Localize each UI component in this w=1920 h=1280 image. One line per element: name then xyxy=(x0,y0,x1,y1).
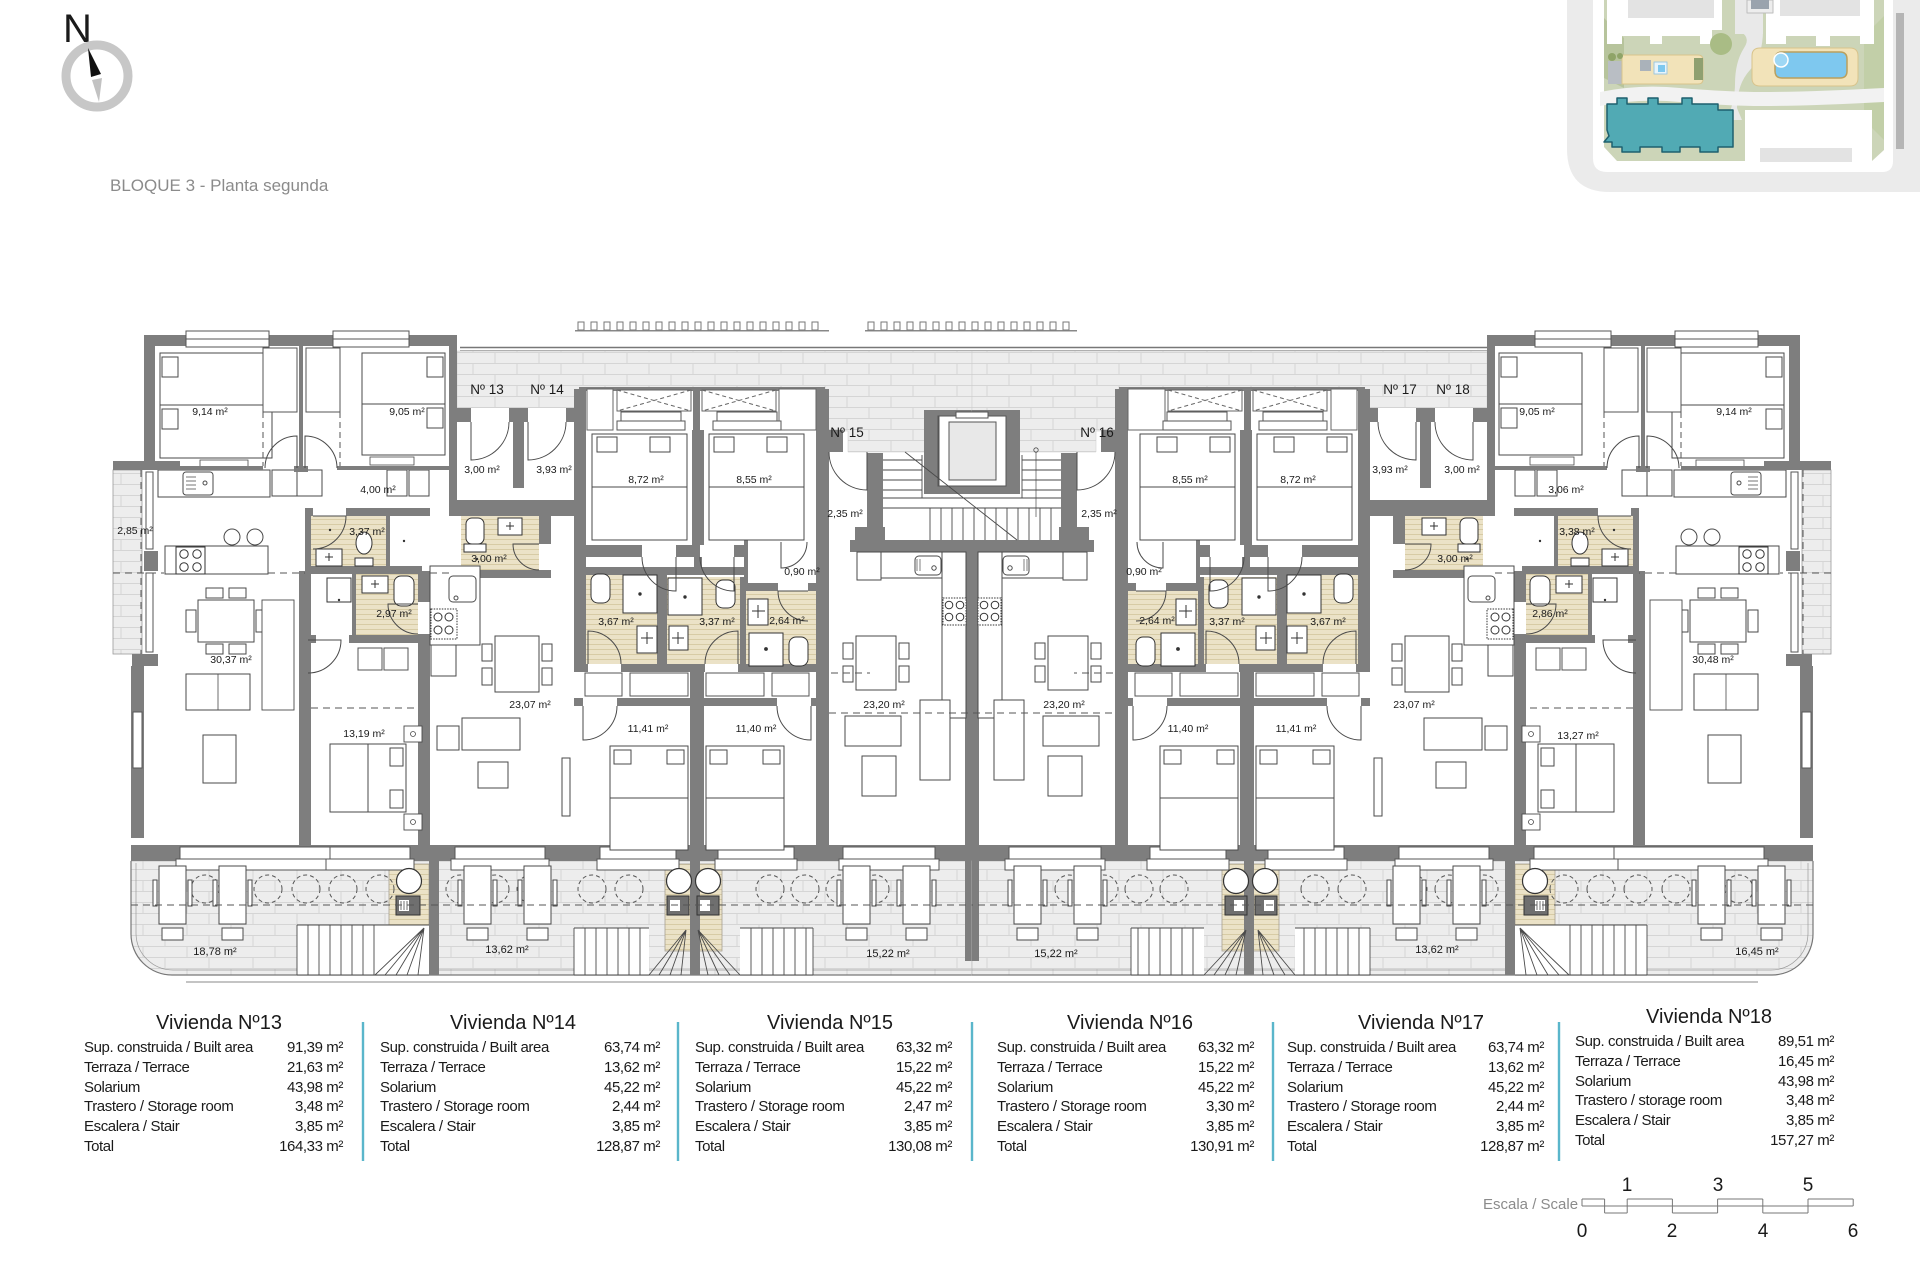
svg-text:Escalera / Stair: Escalera / Stair xyxy=(1287,1118,1383,1135)
svg-text:Nº 18: Nº 18 xyxy=(1436,382,1469,397)
svg-text:6: 6 xyxy=(1848,1221,1859,1242)
svg-text:Solarium: Solarium xyxy=(380,1079,436,1096)
svg-text:23,20 m²: 23,20 m² xyxy=(863,699,905,711)
svg-text:Escalera / Stair: Escalera / Stair xyxy=(997,1118,1093,1135)
svg-text:3,38 m²: 3,38 m² xyxy=(1559,526,1595,538)
svg-text:Solarium: Solarium xyxy=(695,1079,751,1096)
svg-text:45,22 m²: 45,22 m² xyxy=(896,1079,952,1096)
svg-text:Vivienda Nº16: Vivienda Nº16 xyxy=(1067,1012,1193,1034)
svg-text:63,32 m²: 63,32 m² xyxy=(1198,1039,1254,1056)
svg-text:8,72 m²: 8,72 m² xyxy=(628,474,664,486)
svg-text:Total: Total xyxy=(380,1138,410,1155)
svg-text:3,37 m²: 3,37 m² xyxy=(349,526,385,538)
svg-text:3,85 m²: 3,85 m² xyxy=(295,1118,343,1135)
svg-text:128,87 m²: 128,87 m² xyxy=(596,1138,660,1155)
svg-text:3,00 m²: 3,00 m² xyxy=(471,553,507,565)
svg-text:Escalera / Stair: Escalera / Stair xyxy=(380,1118,476,1135)
svg-text:2,85 m²: 2,85 m² xyxy=(117,525,153,537)
svg-text:Terraza / Terrace: Terraza / Terrace xyxy=(695,1059,801,1076)
svg-text:Sup. construida / Built area: Sup. construida / Built area xyxy=(84,1039,254,1056)
svg-text:Total: Total xyxy=(695,1138,725,1155)
svg-text:Total: Total xyxy=(1575,1132,1605,1149)
svg-text:Nº 15: Nº 15 xyxy=(830,425,863,440)
svg-text:45,22 m²: 45,22 m² xyxy=(1488,1079,1544,1096)
svg-text:15,22 m²: 15,22 m² xyxy=(896,1059,952,1076)
svg-text:13,62 m²: 13,62 m² xyxy=(604,1059,660,1076)
svg-text:Solarium: Solarium xyxy=(84,1079,140,1096)
svg-text:Terraza / Terrace: Terraza / Terrace xyxy=(84,1059,190,1076)
svg-text:11,41 m²: 11,41 m² xyxy=(1276,723,1317,735)
svg-text:0: 0 xyxy=(1577,1221,1588,1242)
svg-text:4: 4 xyxy=(1758,1221,1769,1242)
svg-text:Vivienda Nº13: Vivienda Nº13 xyxy=(156,1012,282,1034)
svg-text:Terraza / Terrace: Terraza / Terrace xyxy=(997,1059,1103,1076)
svg-text:9,05 m²: 9,05 m² xyxy=(389,406,425,418)
svg-text:3,48 m²: 3,48 m² xyxy=(1786,1092,1834,1109)
svg-text:4,00 m²: 4,00 m² xyxy=(360,484,396,496)
svg-text:8,72 m²: 8,72 m² xyxy=(1280,474,1316,486)
svg-text:Escalera / Stair: Escalera / Stair xyxy=(84,1118,180,1135)
svg-text:1: 1 xyxy=(1622,1175,1633,1196)
svg-text:11,40 m²: 11,40 m² xyxy=(1168,723,1209,735)
svg-text:Terraza / Terrace: Terraza / Terrace xyxy=(1287,1059,1393,1076)
svg-text:Escalera / Stair: Escalera / Stair xyxy=(1575,1112,1671,1129)
svg-text:Vivienda Nº15: Vivienda Nº15 xyxy=(767,1012,893,1034)
svg-text:13,62 m²: 13,62 m² xyxy=(485,944,529,956)
svg-text:2: 2 xyxy=(1667,1221,1678,1242)
svg-text:3,37 m²: 3,37 m² xyxy=(1209,616,1245,628)
svg-text:11,41 m²: 11,41 m² xyxy=(628,723,669,735)
svg-text:Terraza / Terrace: Terraza / Terrace xyxy=(1575,1053,1681,1070)
svg-text:30,37 m²: 30,37 m² xyxy=(210,654,252,666)
svg-text:3,85 m²: 3,85 m² xyxy=(1206,1118,1254,1135)
svg-text:3,85 m²: 3,85 m² xyxy=(904,1118,952,1135)
svg-text:Total: Total xyxy=(84,1138,114,1155)
svg-text:BLOQUE 3 - Planta segunda: BLOQUE 3 - Planta segunda xyxy=(110,176,329,195)
svg-text:16,45 m²: 16,45 m² xyxy=(1778,1053,1834,1070)
svg-text:2,35 m²: 2,35 m² xyxy=(827,508,863,520)
svg-text:Total: Total xyxy=(1287,1138,1317,1155)
svg-text:130,91 m²: 130,91 m² xyxy=(1190,1138,1254,1155)
svg-text:45,22 m²: 45,22 m² xyxy=(1198,1079,1254,1096)
svg-text:Trastero / Storage room: Trastero / Storage room xyxy=(380,1098,529,1115)
svg-text:Sup. construida / Built area: Sup. construida / Built area xyxy=(695,1039,865,1056)
svg-text:3,00 m²: 3,00 m² xyxy=(1444,464,1480,476)
svg-text:3,67 m²: 3,67 m² xyxy=(598,616,634,628)
svg-text:2,64 m²: 2,64 m² xyxy=(769,615,805,627)
svg-text:130,08 m²: 130,08 m² xyxy=(888,1138,952,1155)
svg-text:Trastero / Storage room: Trastero / Storage room xyxy=(1287,1098,1436,1115)
svg-text:2,64 m²: 2,64 m² xyxy=(1139,615,1175,627)
svg-text:2,44 m²: 2,44 m² xyxy=(1496,1098,1544,1115)
svg-text:2,47 m²: 2,47 m² xyxy=(904,1098,952,1115)
svg-text:15,22 m²: 15,22 m² xyxy=(1034,948,1078,960)
svg-text:63,74 m²: 63,74 m² xyxy=(604,1039,660,1056)
svg-text:3,30 m²: 3,30 m² xyxy=(1206,1098,1254,1115)
svg-text:Nº 16: Nº 16 xyxy=(1080,425,1113,440)
svg-text:Nº 17: Nº 17 xyxy=(1383,382,1416,397)
svg-text:23,07 m²: 23,07 m² xyxy=(1393,699,1435,711)
svg-text:3: 3 xyxy=(1713,1175,1724,1196)
svg-text:43,98 m²: 43,98 m² xyxy=(287,1079,343,1096)
svg-text:21,63 m²: 21,63 m² xyxy=(287,1059,343,1076)
svg-text:Sup. construida / Built area: Sup. construida / Built area xyxy=(997,1039,1167,1056)
svg-text:9,14 m²: 9,14 m² xyxy=(1716,406,1752,418)
svg-text:45,22 m²: 45,22 m² xyxy=(604,1079,660,1096)
svg-text:8,55 m²: 8,55 m² xyxy=(736,474,772,486)
svg-text:3,37 m²: 3,37 m² xyxy=(699,616,735,628)
svg-text:8,55 m²: 8,55 m² xyxy=(1172,474,1208,486)
svg-text:3,67 m²: 3,67 m² xyxy=(1310,616,1346,628)
svg-text:15,22 m²: 15,22 m² xyxy=(1198,1059,1254,1076)
svg-text:3,85 m²: 3,85 m² xyxy=(612,1118,660,1135)
svg-text:3,85 m²: 3,85 m² xyxy=(1786,1112,1834,1129)
svg-text:164,33 m²: 164,33 m² xyxy=(279,1138,343,1155)
svg-text:9,05 m²: 9,05 m² xyxy=(1519,406,1555,418)
svg-text:157,27 m²: 157,27 m² xyxy=(1770,1132,1834,1149)
svg-text:Terraza / Terrace: Terraza / Terrace xyxy=(380,1059,486,1076)
svg-text:Trastero / Storage room: Trastero / Storage room xyxy=(84,1098,233,1115)
svg-text:13,27 m²: 13,27 m² xyxy=(1557,730,1599,742)
svg-text:128,87 m²: 128,87 m² xyxy=(1480,1138,1544,1155)
svg-text:43,98 m²: 43,98 m² xyxy=(1778,1073,1834,1090)
svg-text:15,22 m²: 15,22 m² xyxy=(866,948,910,960)
svg-text:11,40 m²: 11,40 m² xyxy=(736,723,777,735)
svg-text:3,00 m²: 3,00 m² xyxy=(464,464,500,476)
svg-text:Nº 13: Nº 13 xyxy=(470,382,503,397)
svg-text:16,45 m²: 16,45 m² xyxy=(1735,946,1779,958)
svg-text:Nº 14: Nº 14 xyxy=(530,382,564,397)
svg-text:3,00 m²: 3,00 m² xyxy=(1437,553,1473,565)
svg-text:Trastero / Storage room: Trastero / Storage room xyxy=(695,1098,844,1115)
svg-text:5: 5 xyxy=(1803,1175,1814,1196)
svg-text:Solarium: Solarium xyxy=(1287,1079,1343,1096)
svg-text:2,97 m²: 2,97 m² xyxy=(376,608,412,620)
svg-text:30,48 m²: 30,48 m² xyxy=(1692,654,1734,666)
svg-text:63,32 m²: 63,32 m² xyxy=(896,1039,952,1056)
svg-text:Sup. construida / Built area: Sup. construida / Built area xyxy=(380,1039,550,1056)
svg-text:Escala / Scale: Escala / Scale xyxy=(1483,1196,1578,1213)
svg-text:Vivienda Nº17: Vivienda Nº17 xyxy=(1358,1012,1484,1034)
svg-text:0,90 m²: 0,90 m² xyxy=(1126,566,1162,578)
svg-text:Sup. construida / Built area: Sup. construida / Built area xyxy=(1575,1033,1745,1050)
svg-text:3,85 m²: 3,85 m² xyxy=(1496,1118,1544,1135)
svg-text:3,06 m²: 3,06 m² xyxy=(1548,484,1584,496)
svg-text:Trastero / storage room: Trastero / storage room xyxy=(1575,1092,1722,1109)
svg-text:2,35 m²: 2,35 m² xyxy=(1081,508,1117,520)
svg-text:Solarium: Solarium xyxy=(997,1079,1053,1096)
svg-text:Total: Total xyxy=(997,1138,1027,1155)
svg-text:Solarium: Solarium xyxy=(1575,1073,1631,1090)
svg-text:23,07 m²: 23,07 m² xyxy=(509,699,551,711)
svg-text:2,44 m²: 2,44 m² xyxy=(612,1098,660,1115)
svg-text:0,90 m²: 0,90 m² xyxy=(784,566,820,578)
svg-text:13,62 m²: 13,62 m² xyxy=(1488,1059,1544,1076)
svg-text:63,74 m²: 63,74 m² xyxy=(1488,1039,1544,1056)
svg-text:3,93 m²: 3,93 m² xyxy=(536,464,572,476)
svg-text:3,93 m²: 3,93 m² xyxy=(1372,464,1408,476)
svg-text:3,48 m²: 3,48 m² xyxy=(295,1098,343,1115)
svg-text:89,51 m²: 89,51 m² xyxy=(1778,1033,1834,1050)
svg-text:9,14 m²: 9,14 m² xyxy=(192,406,228,418)
svg-text:18,78 m²: 18,78 m² xyxy=(193,946,237,958)
svg-text:Sup. construida / Built area: Sup. construida / Built area xyxy=(1287,1039,1457,1056)
svg-text:13,19 m²: 13,19 m² xyxy=(343,728,385,740)
svg-text:13,62 m²: 13,62 m² xyxy=(1415,944,1459,956)
svg-text:Trastero / Storage room: Trastero / Storage room xyxy=(997,1098,1146,1115)
svg-text:91,39 m²: 91,39 m² xyxy=(287,1039,343,1056)
svg-text:Vivienda Nº14: Vivienda Nº14 xyxy=(450,1012,576,1034)
svg-text:Escalera / Stair: Escalera / Stair xyxy=(695,1118,791,1135)
svg-text:23,20 m²: 23,20 m² xyxy=(1043,699,1085,711)
svg-text:Vivienda Nº18: Vivienda Nº18 xyxy=(1646,1006,1772,1028)
svg-text:2,86 m²: 2,86 m² xyxy=(1532,608,1568,620)
